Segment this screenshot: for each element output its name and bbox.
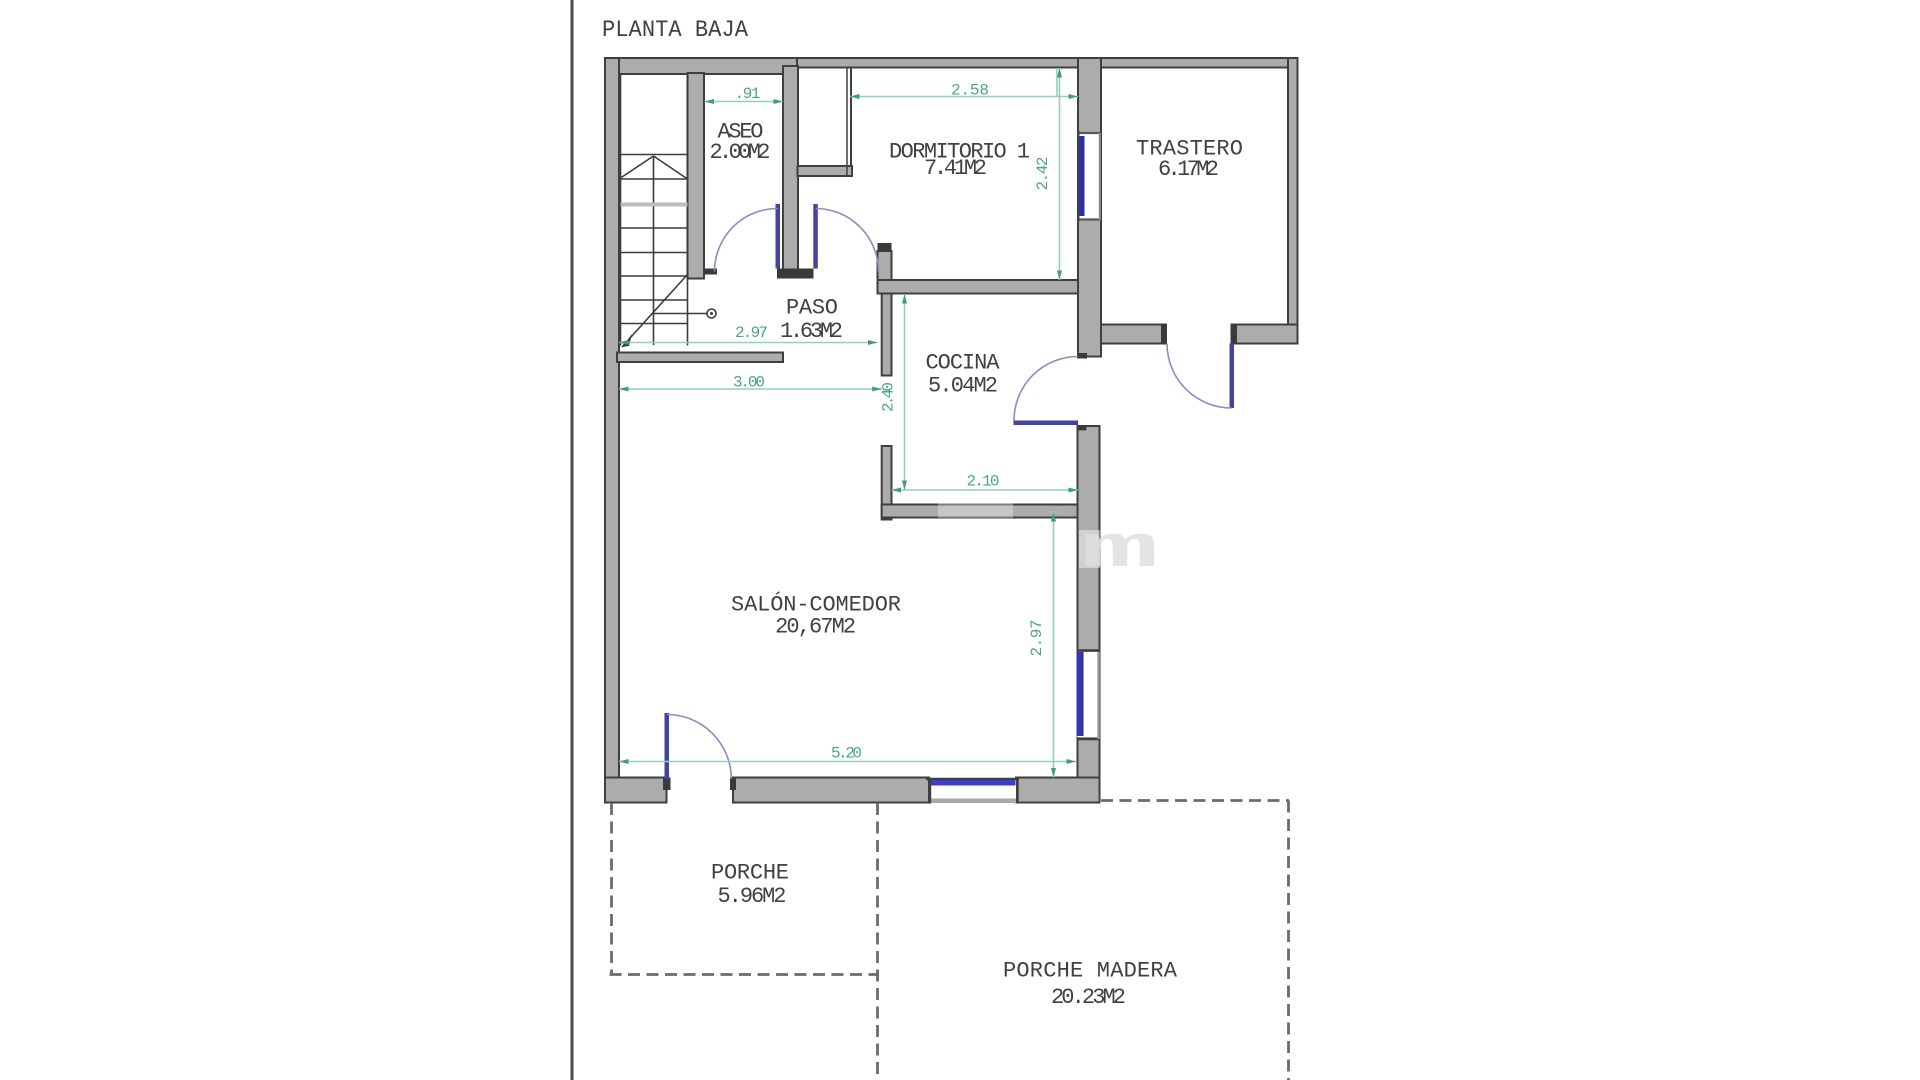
- svg-text:2.00M2: 2.00M2: [710, 140, 771, 165]
- svg-text:PORCHE MADERA: PORCHE MADERA: [1003, 959, 1178, 984]
- svg-text:5.04M2: 5.04M2: [928, 374, 998, 399]
- svg-text:20,67M2: 20,67M2: [775, 615, 856, 640]
- svg-text:5.20: 5.20: [831, 745, 862, 763]
- svg-text:PORCHE: PORCHE: [711, 861, 789, 886]
- svg-text:5.96M2: 5.96M2: [718, 884, 787, 909]
- svg-text:2.97: 2.97: [735, 324, 768, 342]
- svg-text:6.17M2: 6.17M2: [1158, 157, 1219, 182]
- svg-text:7.41M2: 7.41M2: [924, 156, 987, 181]
- svg-text:PASO: PASO: [786, 296, 838, 321]
- svg-text:COCINA: COCINA: [926, 351, 1001, 376]
- svg-text:1.63M2: 1.63M2: [780, 319, 843, 344]
- svg-text:2.10: 2.10: [967, 473, 1000, 491]
- svg-text:2.97: 2.97: [1028, 620, 1046, 657]
- svg-text:2.58: 2.58: [951, 82, 989, 100]
- svg-text:2.40: 2.40: [880, 382, 898, 412]
- svg-text:20.23M2: 20.23M2: [1051, 985, 1126, 1010]
- svg-text:m: m: [1081, 517, 1159, 585]
- svg-text:PLANTA BAJA: PLANTA BAJA: [602, 17, 748, 43]
- svg-text:.91: .91: [735, 85, 761, 103]
- svg-text:3.00: 3.00: [733, 374, 765, 392]
- svg-text:2.42: 2.42: [1034, 157, 1052, 191]
